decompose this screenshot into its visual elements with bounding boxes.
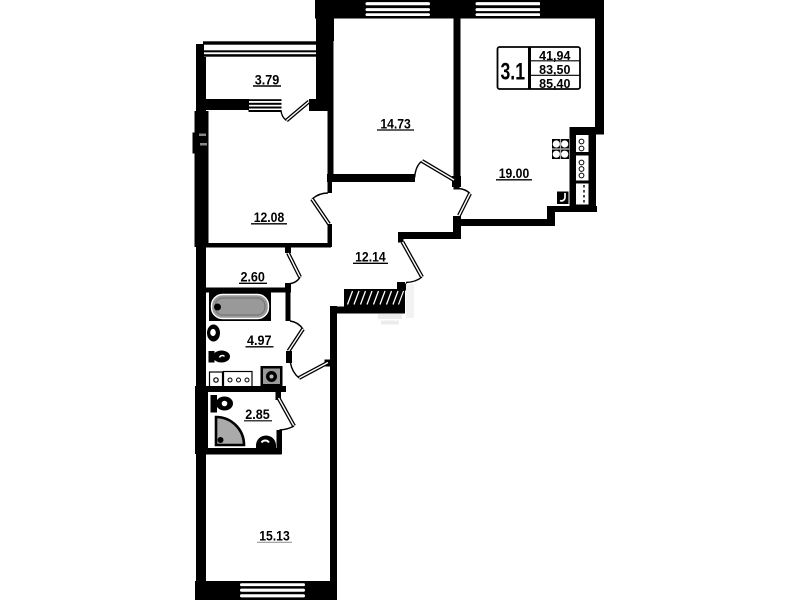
svg-text:4.97: 4.97 [247,332,272,348]
svg-text:12.14: 12.14 [355,249,386,265]
svg-text:41,94: 41,94 [539,49,570,63]
svg-text:3.79: 3.79 [255,72,280,88]
svg-text:2.60: 2.60 [240,269,265,285]
svg-text:19.00: 19.00 [499,165,530,181]
svg-text:12.08: 12.08 [254,209,285,225]
svg-text:2.85: 2.85 [245,406,270,422]
svg-text:3.1: 3.1 [501,58,526,85]
svg-text:14.73: 14.73 [380,116,411,132]
svg-text:83,50: 83,50 [539,63,570,77]
svg-text:85,40: 85,40 [539,77,570,91]
svg-text:15.13: 15.13 [259,528,290,544]
